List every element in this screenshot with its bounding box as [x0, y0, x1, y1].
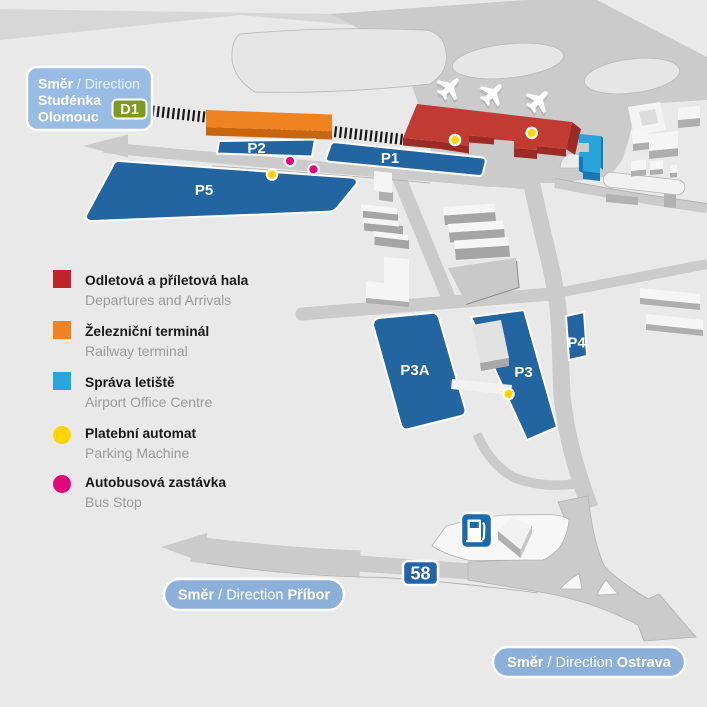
svg-text:Platební automat: Platební automat	[85, 426, 197, 441]
svg-text:P1: P1	[381, 150, 399, 167]
svg-text:Směr / Direction: Směr / Direction	[38, 76, 140, 92]
svg-text:Railway terminal: Railway terminal	[85, 343, 188, 359]
svg-text:P3: P3	[514, 364, 532, 381]
svg-text:Departures and Arrivals: Departures and Arrivals	[85, 292, 231, 308]
svg-text:Železniční terminál: Železniční terminál	[85, 322, 209, 339]
svg-text:P5: P5	[195, 182, 213, 199]
svg-text:Směr / Direction Příbor: Směr / Direction Příbor	[178, 588, 331, 604]
svg-text:Studénka: Studénka	[38, 92, 101, 108]
svg-text:P3A: P3A	[400, 362, 429, 379]
svg-text:P4: P4	[567, 335, 586, 352]
svg-text:58: 58	[410, 564, 430, 584]
svg-text:Směr / Direction Ostrava: Směr / Direction Ostrava	[507, 655, 672, 671]
svg-text:Správa letiště: Správa letiště	[85, 375, 175, 390]
svg-text:Odletová a příletová hala: Odletová a příletová hala	[85, 273, 249, 288]
svg-text:Olomouc: Olomouc	[38, 109, 99, 125]
svg-text:P2: P2	[247, 140, 265, 157]
svg-text:Parking Machine: Parking Machine	[85, 445, 189, 461]
svg-text:Autobusová zastávka: Autobusová zastávka	[85, 475, 226, 490]
svg-text:Airport Office Centre: Airport Office Centre	[85, 394, 213, 410]
svg-text:Bus Stop: Bus Stop	[85, 494, 142, 510]
svg-text:D1: D1	[120, 102, 139, 118]
